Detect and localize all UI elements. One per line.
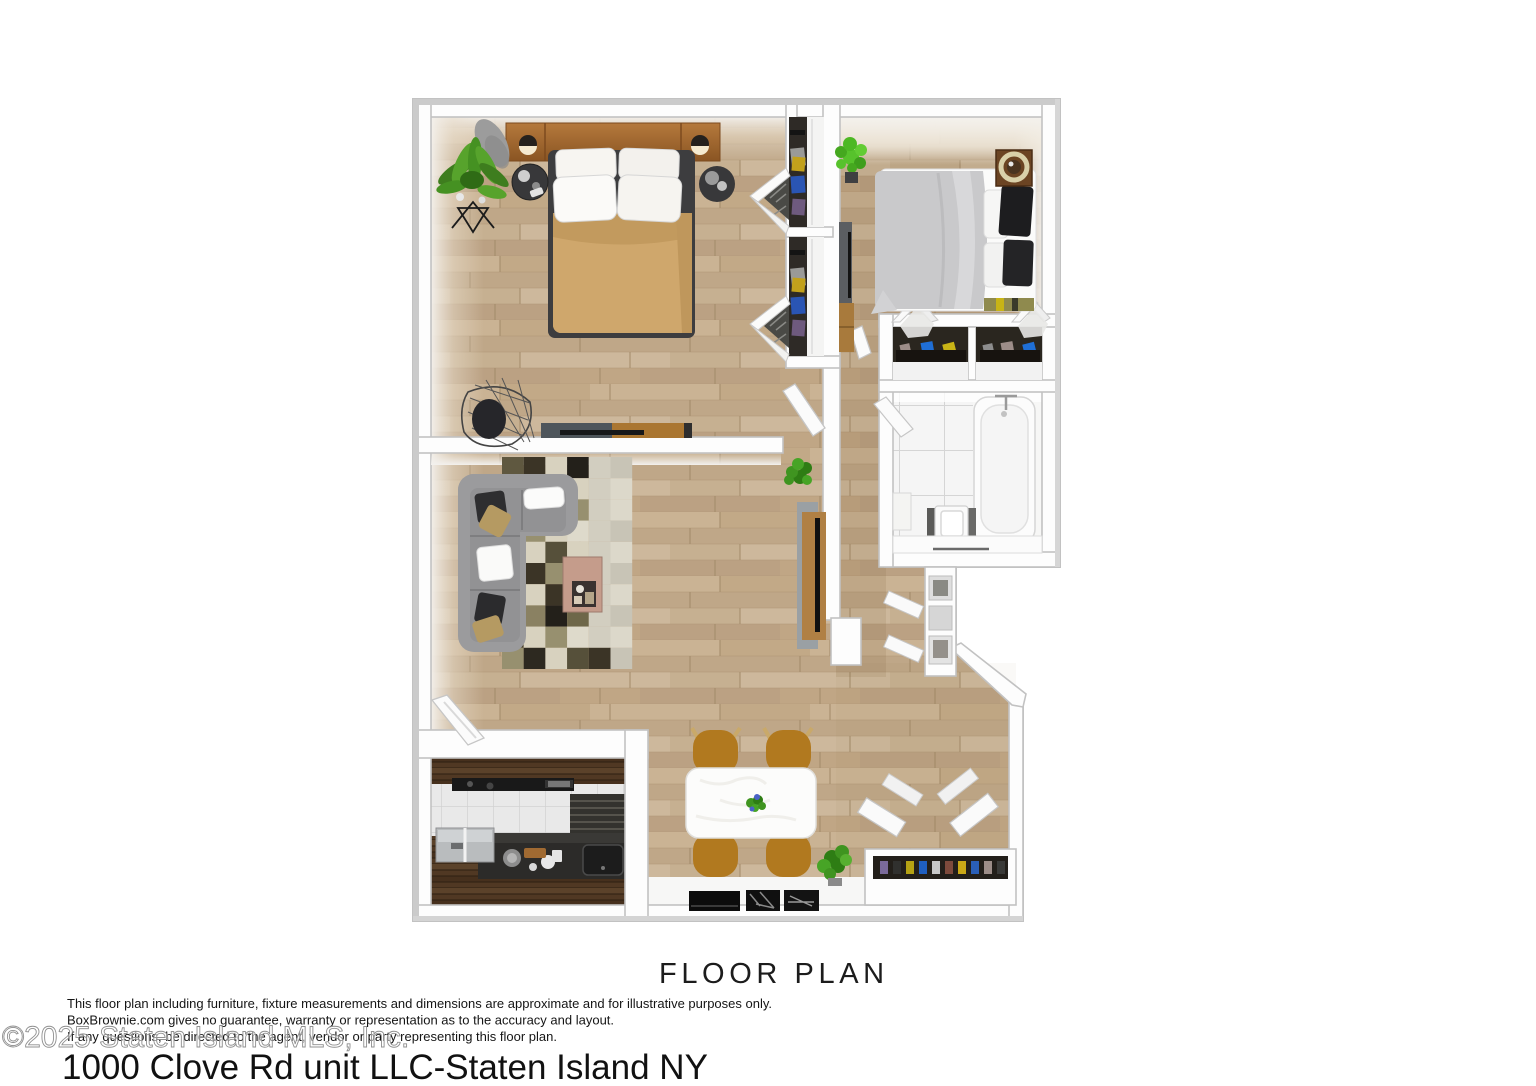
svg-text:FLOOR PLAN: FLOOR PLAN: [659, 958, 889, 990]
svg-text:This floor plan including furn: This floor plan including furniture, fix…: [67, 996, 772, 1011]
svg-text:1000 Clove Rd unit LLC-Staten: 1000 Clove Rd unit LLC-Staten Island NY: [62, 1048, 708, 1086]
